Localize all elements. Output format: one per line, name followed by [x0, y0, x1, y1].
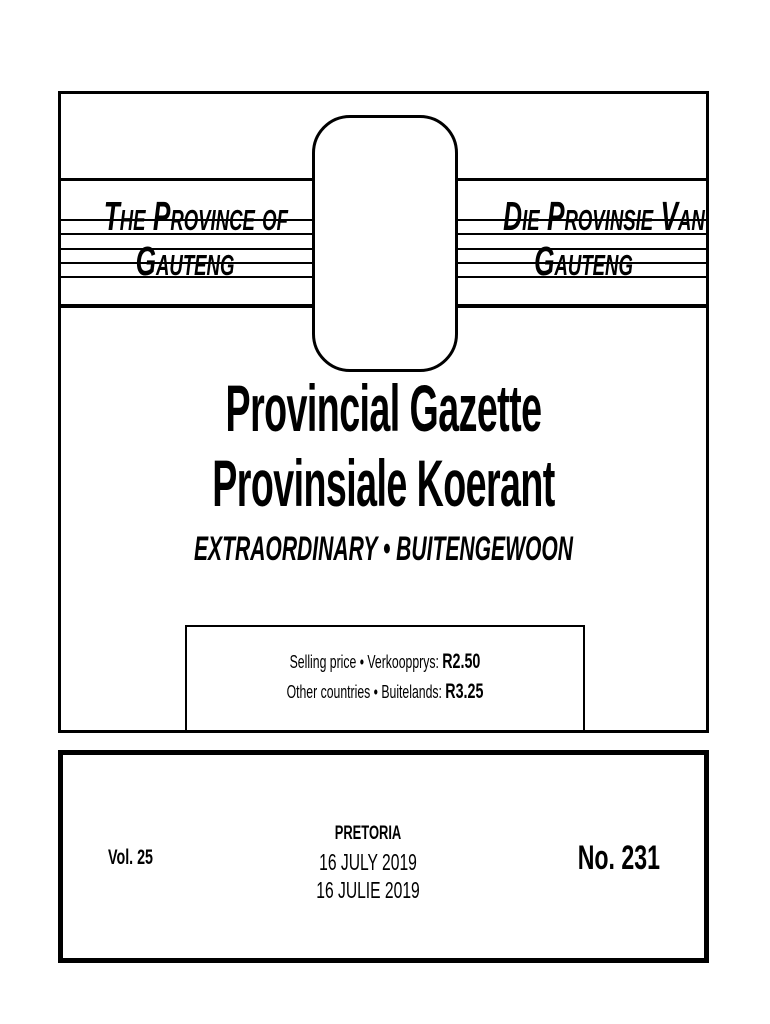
masthead-left-line2: Gauteng: [104, 239, 267, 284]
price-label-local: Selling price • Verkoopprys:: [290, 652, 443, 672]
masthead-right-line2: Gauteng: [503, 239, 664, 284]
gazette-title-en: Provincial Gazette: [198, 371, 569, 446]
gazette-cover-page: The Province of Gauteng Die Provinsie Va…: [0, 0, 770, 1024]
imprint-center: PRETORIA 16 JULY 2019 16 JULIE 2019: [259, 820, 477, 904]
price-label-other: Other countries • Buitelands:: [287, 682, 446, 702]
volume-label: Vol. 25: [108, 846, 153, 870]
price-value-other: R3.25: [445, 680, 483, 703]
masthead-left-line1: The Province of: [104, 194, 267, 239]
emblem-placeholder: [312, 115, 458, 372]
imprint-city: PRETORIA: [259, 820, 477, 848]
imprint-date-af: 16 JULIE 2019: [259, 876, 477, 904]
masthead-right: Die Provinsie Van Gauteng: [503, 194, 664, 284]
gazette-title: Provincial Gazette Provinsiale Koerant: [198, 371, 569, 521]
price-line-other: Other countries • Buitelands: R3.25: [250, 677, 519, 707]
price-box: Selling price • Verkoopprys: R2.50 Other…: [185, 625, 585, 733]
price-value-local: R2.50: [442, 650, 480, 673]
imprint-date-en: 16 JULY 2019: [259, 848, 477, 876]
masthead-right-line1: Die Provinsie Van: [503, 194, 664, 239]
masthead-left: The Province of Gauteng: [104, 194, 267, 284]
gazette-title-af: Provinsiale Koerant: [198, 446, 569, 521]
gazette-number: No. 231: [578, 839, 660, 878]
price-line-local: Selling price • Verkoopprys: R2.50: [250, 647, 519, 677]
gazette-subtitle: EXTRAORDINARY • BUITENGEWOON: [182, 530, 586, 569]
